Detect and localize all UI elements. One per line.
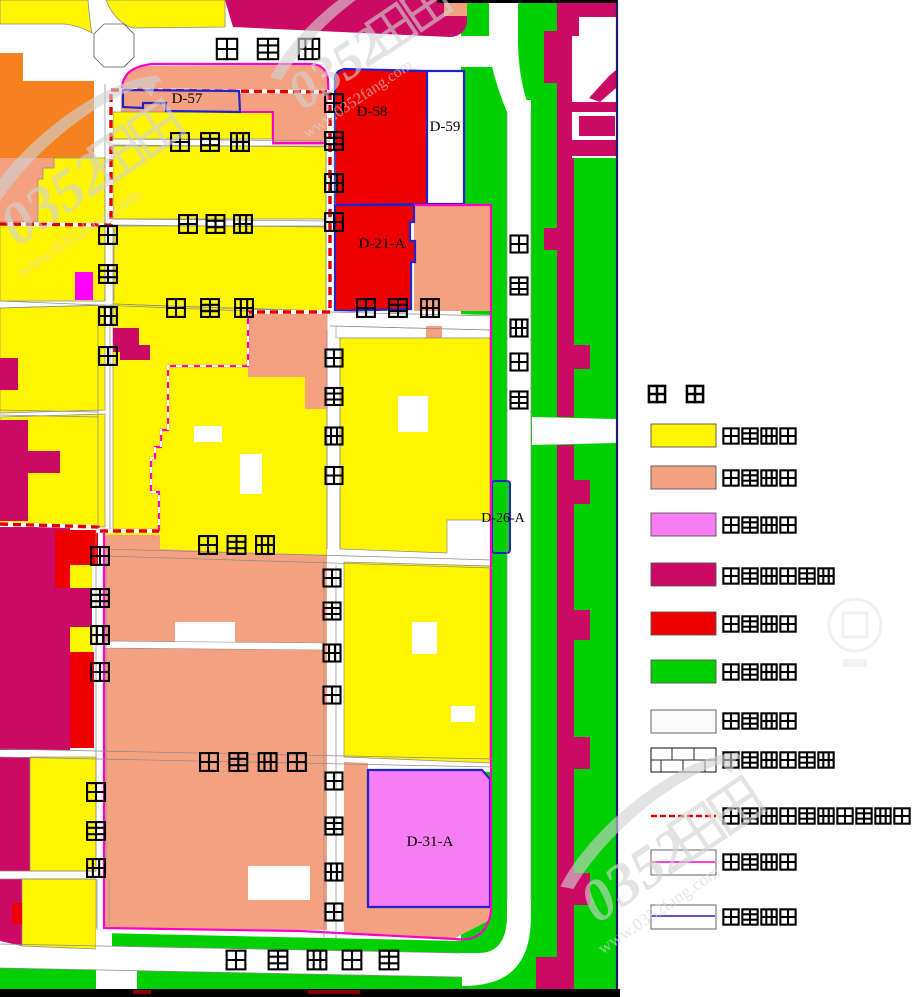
svg-text:D-31-A: D-31-A <box>407 834 454 850</box>
svg-text:D-21-A: D-21-A <box>359 236 406 252</box>
svg-text:D-26-A: D-26-A <box>481 511 525 526</box>
svg-text:D-59: D-59 <box>430 119 461 135</box>
svg-text:D-57: D-57 <box>172 91 203 107</box>
